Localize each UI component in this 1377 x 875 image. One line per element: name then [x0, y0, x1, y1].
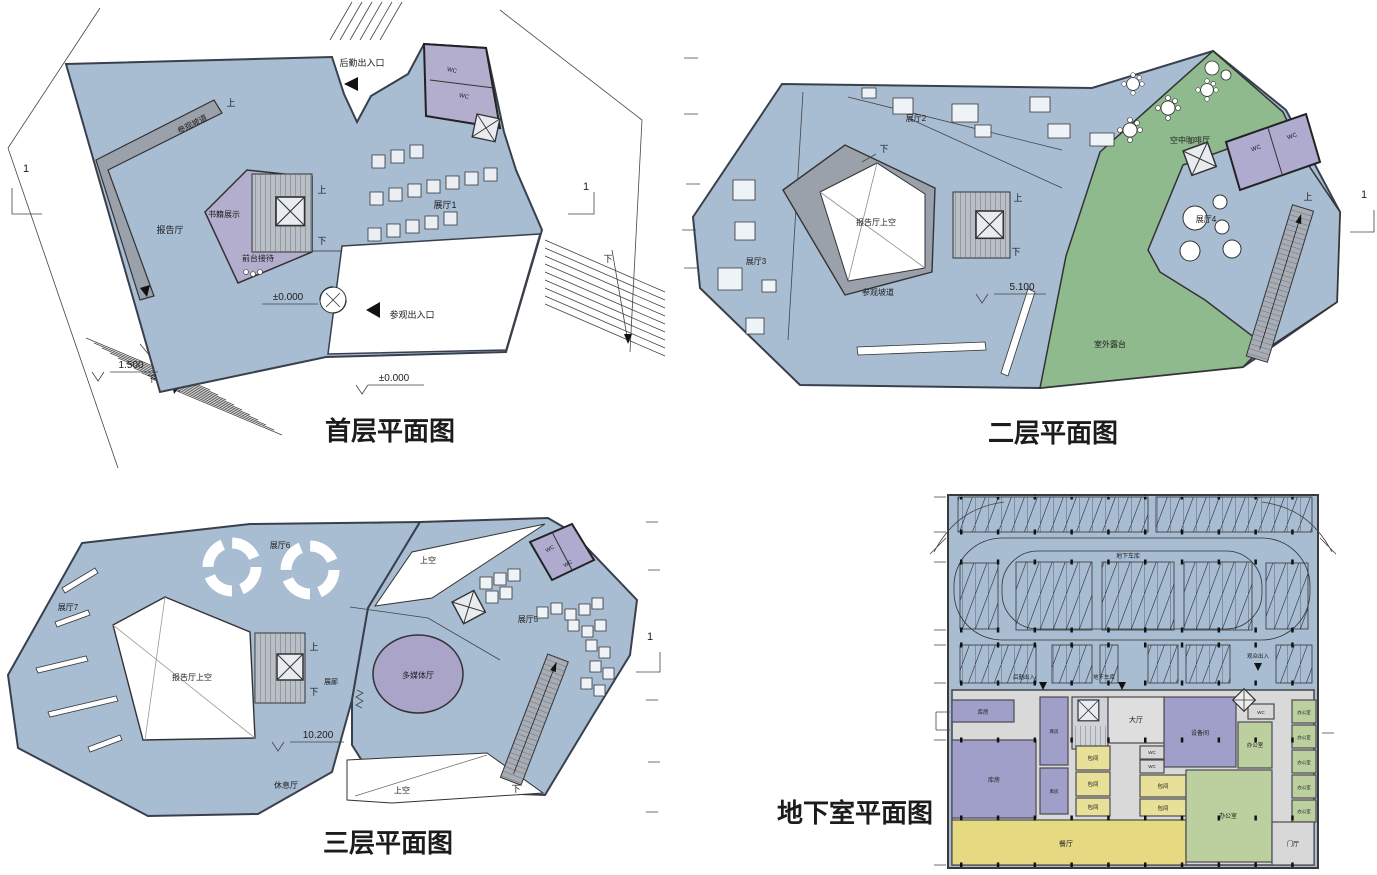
stair-down: 下: [511, 784, 520, 794]
exhibit1-label: 展厅1: [433, 200, 456, 210]
gallery-label: 展廊: [324, 677, 338, 686]
exhibit6-label: 展厅6: [270, 541, 291, 550]
terrace-label: 室外露台: [1094, 339, 1126, 349]
svg-text:下: 下: [603, 254, 612, 264]
revolving-door-icon: [320, 287, 346, 313]
visitor-entrance-label: 参观出入口: [389, 309, 434, 320]
core-down: 下: [1011, 247, 1020, 257]
svg-text:5.100: 5.100: [1009, 282, 1034, 293]
svg-text:1.500: 1.500: [118, 360, 143, 371]
exhibit5-label: 展厅5: [518, 615, 539, 624]
svg-text:1: 1: [647, 631, 653, 643]
hall-void-label: 报告厅上空: [172, 672, 212, 682]
hall-label: 报告厅: [156, 224, 183, 235]
floor1-plan: 参观坡道 上 书籍展示 前台接待 报告厅 上 下 WC WC 展厅1 后勤出入口…: [8, 2, 665, 468]
core-up: 上: [317, 185, 326, 195]
section-marker: 1: [636, 631, 660, 672]
floor3-plan: 上空 上空 报告厅上空 上 下 展厅6 展厅7 多媒体厅 展厅5 WC WC: [8, 518, 660, 858]
exhibit7-label: 展厅7: [58, 603, 79, 612]
floor-plans-canvas: 参观坡道 上 书籍展示 前台接待 报告厅 上 下 WC WC 展厅1 后勤出入口…: [0, 0, 1377, 875]
svg-text:±0.000: ±0.000: [273, 292, 304, 303]
dim-ticks: [646, 522, 660, 812]
floor2-title: 二层平面图: [988, 418, 1118, 448]
exhibit2-label: 展厅2: [906, 114, 927, 123]
exhibit3-label: 展厅3: [746, 257, 767, 266]
core-up: 上: [1013, 193, 1022, 203]
floor1-title: 首层平面图: [325, 416, 455, 446]
floor1-entry-plaza: [328, 234, 540, 354]
svg-text:10.200: 10.200: [303, 730, 334, 741]
lounge-label: 休息厅: [274, 780, 298, 790]
ramp-down: 下: [879, 144, 888, 154]
service-entrance-label: 后勤出入口: [339, 57, 384, 68]
svg-text:±0.000: ±0.000: [379, 373, 410, 384]
core-down: 下: [309, 687, 318, 697]
section-marker: 1: [1350, 189, 1374, 232]
stair-core: [953, 192, 1010, 258]
basement-plan: 地下车库 库房 库房 库房 库房 设备间 大厅 WC W: [777, 495, 1336, 868]
elevator-icon: [472, 114, 500, 142]
elevator-icon: [976, 211, 1003, 238]
svg-text:1: 1: [583, 181, 589, 193]
ramp-up: 上: [226, 98, 235, 108]
multimedia-label: 多媒体厅: [402, 670, 434, 680]
exhibit4-label: 展厅4: [1196, 215, 1217, 224]
drawing-sheet: 参观坡道 上 书籍展示 前台接待 报告厅 上 下 WC WC 展厅1 后勤出入口…: [0, 0, 1377, 875]
floor2-plan: 报告厅上空 参观坡道 下 上 下 展厅2 展厅3 空中咖啡厅 室外露台 WC W…: [682, 51, 1374, 448]
void-label: 上空: [394, 785, 410, 795]
elevator-icon: [277, 654, 303, 680]
svg-text:1: 1: [23, 163, 29, 175]
core-down: 下: [317, 236, 326, 246]
ramp-label: 参观坡道: [862, 287, 894, 297]
floor3-title: 三层平面图: [323, 828, 453, 858]
svg-text:下: 下: [147, 374, 156, 384]
basement-title: 地下室平面图: [777, 798, 933, 828]
svg-text:1: 1: [1361, 189, 1367, 201]
reception-label: 前台接待: [242, 253, 274, 263]
core-up: 上: [309, 642, 318, 652]
stair-core: [255, 633, 305, 703]
service-entrance-arrow-icon: [344, 77, 358, 91]
column-grid: [952, 495, 1316, 867]
elevator-icon: [276, 197, 305, 226]
void-label: 上空: [420, 555, 436, 565]
stair-up: 上: [1303, 192, 1312, 202]
books-label: 书籍展示: [208, 209, 240, 219]
hall-void-label: 报告厅上空: [856, 217, 896, 227]
